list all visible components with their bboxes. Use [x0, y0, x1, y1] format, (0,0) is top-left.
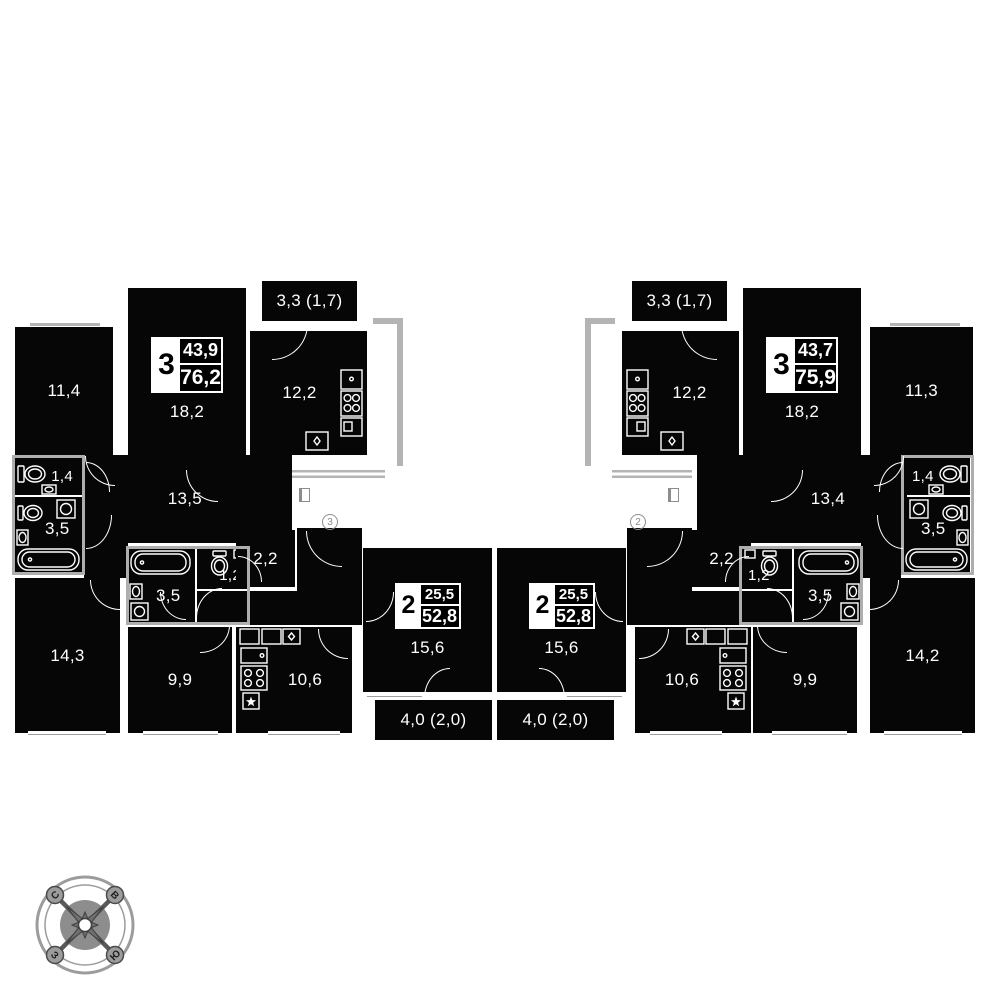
flat-number: 2	[635, 517, 641, 528]
room-area-label: 18,2	[785, 402, 819, 422]
room-area-label: 4,0 (2,0)	[522, 710, 588, 730]
rooms-count: 3	[768, 339, 795, 391]
rooms-count: 2	[397, 585, 421, 627]
landing-glazing	[292, 470, 385, 478]
window-hatch	[148, 285, 238, 288]
room-left-balcony-3-3: 3,3 (1,7)	[262, 281, 357, 321]
room-right-balcony-3-3: 3,3 (1,7)	[632, 281, 727, 321]
room-area-label: 15,6	[410, 638, 444, 658]
total-area-value: 76,2	[180, 365, 221, 391]
room-area-label: 18,2	[170, 402, 204, 422]
room-area-label: 11,4	[47, 381, 80, 401]
flat-number: 3	[327, 517, 333, 528]
total-area-value: 75,9	[795, 365, 836, 391]
room-area-label: 3,3 (1,7)	[276, 291, 342, 311]
mirrored-fixtures	[742, 548, 792, 589]
toilet-icon	[742, 548, 792, 589]
room-left2-living-15-6: 2 25,5 52,8 15,6	[363, 548, 492, 692]
compass-rose: С В Ю З	[33, 873, 137, 977]
toilet-icon	[925, 458, 970, 495]
mirrored-fixtures	[903, 458, 970, 495]
landing-glazing	[612, 470, 692, 478]
room-area-label: 11,3	[905, 381, 938, 401]
total-area-value: 52,8	[555, 606, 593, 627]
living-area-value: 43,9	[180, 339, 221, 365]
apartment-info-plate: 2 25,5 52,8	[395, 583, 461, 629]
room-right2-wc-1-2: 1,2	[742, 548, 792, 589]
flat-number-badge: 2	[630, 514, 646, 530]
room-right2-balcony-4-0: 4,0 (2,0)	[497, 700, 614, 740]
mirrored-fixtures	[903, 497, 970, 572]
window-line	[30, 323, 100, 326]
room-right2-living-15-6: 2 25,5 52,8 15,6	[497, 548, 626, 692]
room-right-kitchen-12-2: 12,2	[622, 331, 739, 455]
bathtub-toilet-sink-washer-icon	[15, 497, 82, 572]
room-area-label: 14,3	[50, 646, 84, 666]
room-area-label: 9,9	[168, 670, 193, 690]
window	[367, 693, 422, 700]
room-right-bathroom-3-5: 3,5	[903, 497, 970, 572]
window	[650, 731, 722, 738]
window	[268, 731, 340, 738]
apartment-info-plate: 3 43,7 75,9	[766, 337, 838, 393]
room-right-living-18-2: 3 43,7 75,9 18,2	[743, 288, 861, 470]
vent-shaft-icon	[660, 431, 684, 451]
room-left-living-18-2: 3 43,9 76,2 18,2	[128, 288, 246, 470]
room-area-label: 12,2	[282, 383, 316, 403]
room-area-label: 3,3 (1,7)	[646, 291, 712, 311]
room-right-wc-1-4: 1,4	[903, 458, 970, 495]
kitchen-appliances-icon	[625, 369, 649, 439]
bathtub-toilet-sink-washer-icon	[903, 497, 970, 572]
window-hatch	[752, 285, 842, 288]
window	[28, 731, 106, 738]
window	[143, 731, 218, 738]
room-left-bedroom-11-4: 11,4	[15, 327, 113, 455]
flat-number-badge: 3	[322, 514, 338, 530]
living-area-value: 25,5	[555, 585, 593, 606]
apartment-info-plate: 2 25,5 52,8	[529, 583, 595, 629]
total-area-value: 52,8	[421, 606, 459, 627]
room-area-label: 15,6	[544, 638, 578, 658]
living-area-value: 25,5	[421, 585, 459, 606]
room-area-label: 4,0 (2,0)	[400, 710, 466, 730]
window	[772, 731, 847, 738]
room-left2-balcony-4-0: 4,0 (2,0)	[375, 700, 492, 740]
toilet-icon	[15, 458, 60, 495]
structure-line	[397, 318, 403, 466]
rooms-count: 2	[531, 585, 555, 627]
living-area-value: 43,7	[795, 339, 836, 365]
room-left-kitchen-12-2: 12,2	[250, 331, 367, 455]
stair-door-icon	[299, 488, 310, 502]
room-right-bedroom-11-3: 11,3	[870, 327, 973, 455]
stair-door-icon	[668, 488, 679, 502]
floor-plan: 11,4 3 43,9 76,2 18,2 3,3 (1,7) 12,2 1,4	[0, 0, 1000, 1000]
room-area-label: 9,9	[793, 670, 818, 690]
kitchen-appliances-icon	[340, 369, 364, 439]
window	[567, 693, 622, 700]
apartment-info-plate: 3 43,9 76,2	[151, 337, 223, 393]
window-line	[890, 323, 960, 326]
room-left-wc-1-4: 1,4	[15, 458, 82, 495]
window	[884, 731, 962, 738]
room-left-bathroom-3-5: 3,5	[15, 497, 82, 572]
rooms-count: 3	[153, 339, 180, 391]
structure-line	[585, 318, 591, 466]
room-area-label: 14,2	[905, 646, 939, 666]
vent-shaft-icon	[305, 431, 329, 451]
room-area-label: 13,4	[811, 489, 845, 509]
mirrored-fixtures	[622, 331, 739, 455]
